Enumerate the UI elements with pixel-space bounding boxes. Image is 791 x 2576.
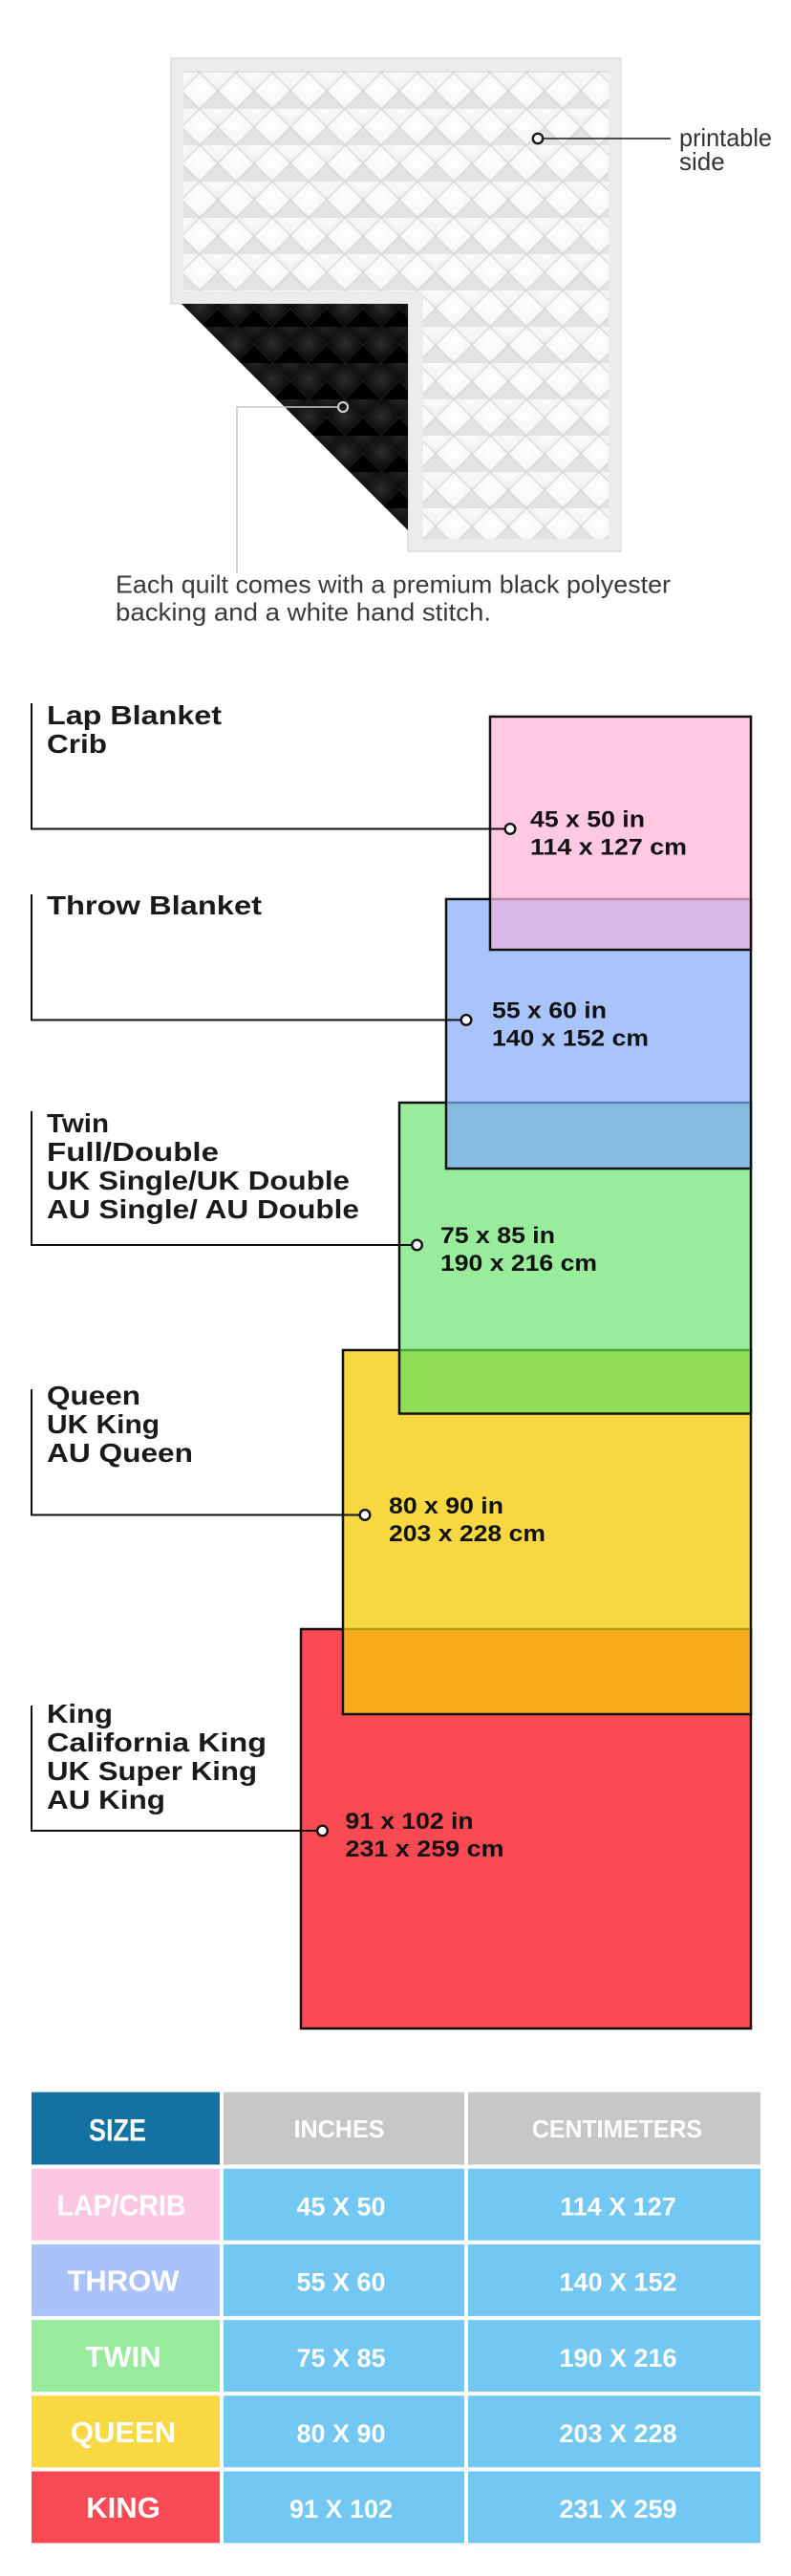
svg-text:side: side [679,147,725,176]
svg-text:Throw Blanket: Throw Blanket [47,891,262,920]
svg-text:140 x 152 cm: 140 x 152 cm [492,1026,649,1052]
svg-text:UK Super King: UK Super King [47,1756,257,1786]
svg-text:55 X 60: 55 X 60 [296,2268,385,2297]
svg-text:140 X 152: 140 X 152 [559,2268,676,2297]
svg-text:Full/Double: Full/Double [47,1137,219,1167]
svg-text:Queen: Queen [47,1381,140,1410]
svg-text:80 X 90: 80 X 90 [296,2419,385,2448]
svg-text:LAP/CRIB: LAP/CRIB [57,2188,186,2222]
svg-text:King: King [47,1699,113,1728]
svg-text:AU King: AU King [47,1785,165,1814]
svg-text:203 x 228 cm: 203 x 228 cm [389,1521,545,1547]
svg-text:backing and a white hand stitc: backing and a white hand stitch. [116,598,491,627]
svg-text:CENTIMETERS: CENTIMETERS [532,2114,702,2143]
svg-text:45 X 50: 45 X 50 [296,2192,385,2221]
svg-text:75 x 85 in: 75 x 85 in [440,1223,555,1249]
svg-text:80 x 90 in: 80 x 90 in [389,1493,503,1519]
svg-text:California King: California King [47,1728,267,1757]
svg-text:190 X 216: 190 X 216 [559,2344,676,2372]
svg-text:203 X 228: 203 X 228 [559,2419,676,2448]
svg-text:QUEEN: QUEEN [71,2415,176,2449]
svg-text:TWIN: TWIN [85,2340,160,2373]
svg-text:AU Single/ AU Double: AU Single/ AU Double [47,1194,359,1224]
svg-text:AU Queen: AU Queen [47,1438,193,1468]
svg-text:75 X 85: 75 X 85 [296,2344,385,2372]
svg-text:Twin: Twin [47,1108,109,1138]
svg-text:114 X 127: 114 X 127 [560,2192,676,2221]
svg-text:45 x 50 in: 45 x 50 in [530,807,645,833]
svg-text:KING: KING [86,2491,160,2524]
svg-text:Each quilt comes with a premiu: Each quilt comes with a premium black po… [116,570,671,599]
svg-text:UK Single/UK Double: UK Single/UK Double [47,1166,350,1195]
svg-text:UK King: UK King [47,1409,160,1439]
svg-text:231 x 259 cm: 231 x 259 cm [346,1836,504,1862]
svg-text:Crib: Crib [47,729,107,759]
svg-text:INCHES: INCHES [294,2114,385,2143]
svg-text:55 x 60 in: 55 x 60 in [492,998,607,1024]
svg-text:91 X 102: 91 X 102 [289,2495,393,2523]
svg-text:114 x 127 cm: 114 x 127 cm [530,835,687,861]
svg-text:THROW: THROW [67,2265,180,2298]
svg-text:190 x 216 cm: 190 x 216 cm [440,1251,597,1277]
svg-text:SIZE: SIZE [89,2114,146,2148]
svg-text:Lap Blanket: Lap Blanket [47,700,222,730]
svg-text:231 X 259: 231 X 259 [559,2495,676,2523]
svg-text:91 x 102 in: 91 x 102 in [346,1809,474,1835]
